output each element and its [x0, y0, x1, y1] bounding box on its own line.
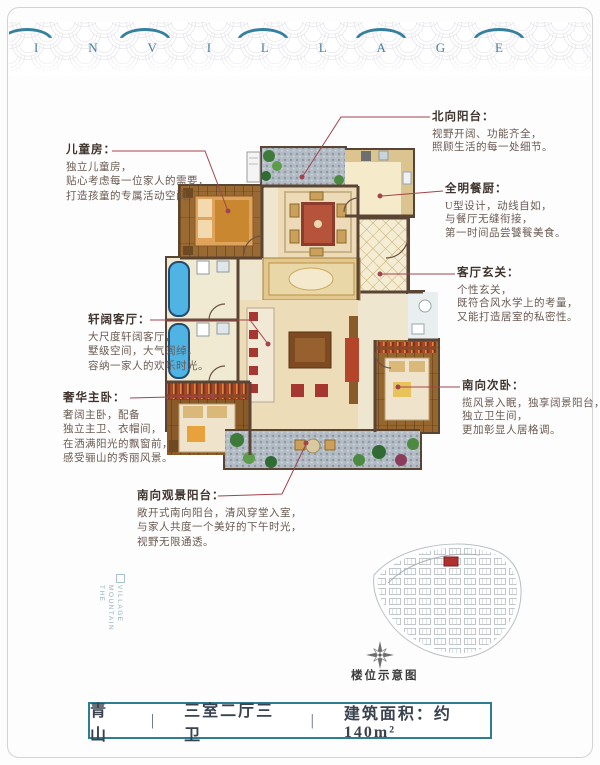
note-line: U型设计，动线自如， — [445, 200, 566, 214]
brand-letter: L — [319, 40, 328, 56]
brand-letter: I — [207, 40, 212, 56]
room-dining — [278, 186, 358, 258]
note-line: 与餐厅无缝衔接， — [445, 213, 566, 227]
brand-letter: V — [147, 40, 157, 56]
note-line: 容纳一家人的欢乐时光。 — [88, 360, 209, 375]
note-line: 更加彰显人居格调。 — [462, 424, 600, 438]
note-grand-living: 轩阔客厅： 大尺度轩阔客厅， 墅级空间，大气阔绰， 容纳一家人的欢乐时光。 — [88, 313, 209, 374]
note-title: 轩阔客厅： — [88, 313, 209, 328]
note-title: 客厅玄关： — [457, 267, 578, 281]
room-south-balcony — [225, 430, 420, 468]
room-living — [240, 300, 359, 430]
note-north-balcony: 北向阳台： 视野开阔、功能齐全， 照顾生活的每一处细节。 — [432, 111, 553, 155]
project-name: 青山 — [90, 697, 123, 745]
note-line: 既符合风水学上的考量， — [457, 297, 578, 311]
note-line: 敞开式南向阳台，清风穿堂入室， — [137, 507, 302, 522]
note-line: 独立卫生间， — [462, 410, 600, 424]
note-foyer: 客厅玄关： 个性玄关， 既符合风水学上的考量， 又能打造居室的私密性。 — [457, 267, 578, 324]
brand-letter: E — [495, 40, 504, 56]
note-title: 南向观景阳台： — [137, 489, 302, 504]
layout-spec: 三室二厅三卫 — [184, 697, 283, 745]
room-bath-1 — [167, 258, 238, 320]
note-line: 贴心考虑每一位家人的需要， — [66, 175, 209, 190]
brand-letter: I — [34, 40, 39, 56]
site-plan-buildings — [378, 548, 517, 654]
floorplan-flyer-page: I N V I L L A G E — [0, 0, 600, 765]
note-children-room: 儿童房： 独立儿童房， 贴心考虑每一位家人的需要， 打造孩童的专属活动空间。 — [66, 143, 209, 204]
side-text-line: VILLAGE MOUNTAIN — [107, 585, 123, 631]
site-plan-caption: 楼位示意图 — [351, 667, 419, 683]
note-line: 与家人共度一个美好的下午时光， — [137, 521, 302, 536]
room-master — [167, 382, 250, 455]
highlighted-building — [444, 557, 458, 566]
separator: | — [311, 712, 316, 730]
room-kitchen — [345, 150, 413, 216]
note-line: 打造孩童的专属活动空间。 — [66, 190, 209, 205]
header-wave-pattern: I N V I L L A G E — [9, 22, 591, 76]
hallway-rug — [263, 258, 360, 300]
side-vertical-text: VILLAGE MOUNTAIN THE — [97, 585, 124, 655]
note-second-bedroom: 南向次卧： 揽风景入眠，独享阔景阳台， 独立卫生间， 更加彰显人居格调。 — [462, 380, 600, 437]
note-line: 又能打造居室的私密性。 — [457, 311, 578, 325]
separator: | — [151, 712, 156, 730]
note-line: 感受骊山的秀丽风景。 — [63, 452, 173, 467]
room-bath-entry — [408, 292, 438, 340]
site-plan-map — [358, 537, 536, 665]
note-south-balcony: 南向观景阳台： 敞开式南向阳台，清风穿堂入室， 与家人共度一个美好的下午时光， … — [137, 489, 302, 550]
note-line: 在洒满阳光的飘窗前， — [63, 438, 173, 453]
note-title: 全明餐厨： — [445, 183, 566, 197]
brand-lettering: I N V I L L A G E — [34, 40, 504, 56]
brand-letter: N — [88, 40, 98, 56]
note-line: 照顾生活的每一处细节。 — [432, 141, 553, 155]
brand-letter: A — [377, 40, 387, 56]
note-line: 独立主卫、衣帽间， — [63, 423, 173, 438]
footer-info-bar: 青山 | 三室二厅三卫 | 建筑面积：约140m² — [88, 702, 492, 739]
note-line: 奢阔主卧，配备 — [63, 409, 173, 424]
door-arcs — [244, 198, 391, 368]
brand-letter: G — [436, 40, 446, 56]
note-line: 个性玄关， — [457, 284, 578, 298]
room-foyer — [358, 218, 408, 292]
side-logo-icon — [116, 574, 125, 583]
compass-icon — [366, 641, 394, 669]
brand-letter: L — [261, 40, 270, 56]
note-title: 北向阳台： — [432, 111, 553, 125]
note-title: 奢华主卧： — [63, 391, 173, 406]
note-line: 大尺度轩阔客厅， — [88, 331, 209, 346]
room-bedroom2 — [375, 340, 438, 432]
side-text-line: THE — [98, 585, 105, 603]
note-master-bedroom: 奢华主卧： 奢阔主卧，配备 独立主卫、衣帽间， 在洒满阳光的飘窗前， 感受骊山的… — [63, 391, 173, 467]
note-kitchen: 全明餐厨： U型设计，动线自如， 与餐厅无缝衔接， 第一时间品尝饕餮美食。 — [445, 183, 566, 240]
note-line: 揽风景入眠，独享阔景阳台， — [462, 397, 600, 411]
note-title: 儿童房： — [66, 143, 209, 158]
note-line: 视野无限通透。 — [137, 536, 302, 551]
note-line: 墅级空间，大气阔绰， — [88, 345, 209, 360]
note-line: 第一时间品尝饕餮美食。 — [445, 227, 566, 241]
note-line: 视野开阔、功能齐全， — [432, 128, 553, 142]
area-spec: 建筑面积：约140m² — [344, 700, 490, 742]
note-line: 独立儿童房， — [66, 161, 209, 176]
note-title: 南向次卧： — [462, 380, 600, 394]
room-north-balcony — [247, 148, 345, 186]
